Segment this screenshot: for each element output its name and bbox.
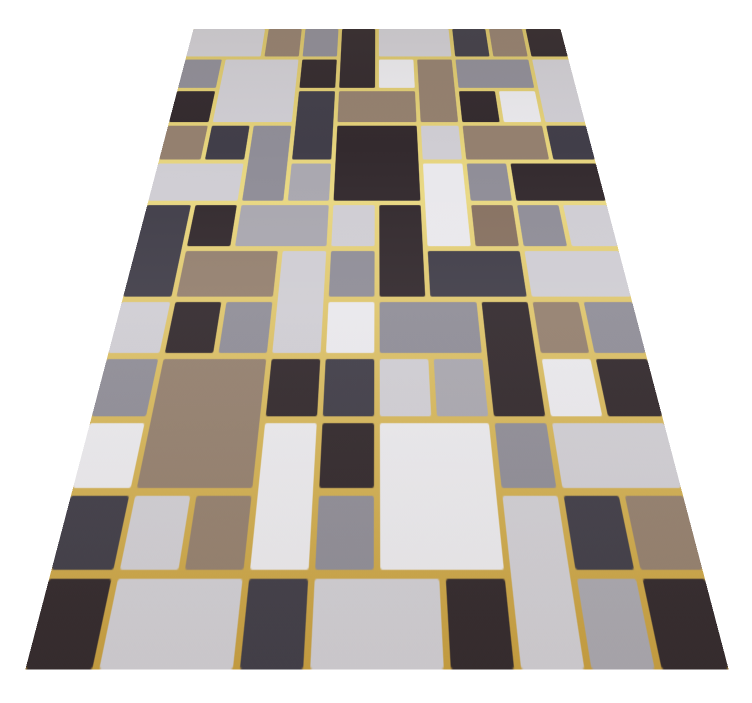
rug-tile bbox=[240, 579, 308, 669]
rug-tile bbox=[552, 423, 681, 488]
rug-plane bbox=[25, 29, 728, 669]
rug-tile bbox=[643, 579, 729, 669]
rug-tile bbox=[499, 91, 541, 122]
rug-tile bbox=[533, 302, 589, 353]
rug-tile bbox=[446, 579, 514, 669]
rug-tile bbox=[625, 496, 703, 570]
rug-tile bbox=[186, 29, 265, 56]
rug-tile bbox=[524, 251, 630, 297]
rug-tile bbox=[463, 126, 549, 160]
rug-tile bbox=[380, 359, 431, 416]
rug-tile bbox=[235, 205, 329, 246]
rug-tile bbox=[242, 126, 291, 201]
rug-tile bbox=[288, 164, 331, 201]
rug-tile bbox=[25, 579, 111, 669]
rug-tile bbox=[331, 205, 374, 246]
rug-tile bbox=[563, 205, 617, 246]
rug-tile bbox=[266, 359, 320, 416]
rug-tile bbox=[299, 60, 336, 88]
rug-tile bbox=[73, 423, 145, 488]
rug-tile bbox=[546, 126, 595, 160]
rug-tile bbox=[137, 359, 266, 488]
rug-tile bbox=[92, 359, 158, 416]
rug-tile bbox=[219, 302, 273, 353]
rug-tile bbox=[185, 496, 252, 570]
rug-tile bbox=[434, 359, 488, 416]
rug-tile bbox=[264, 29, 301, 56]
rug-tile bbox=[489, 29, 528, 56]
rug-tile bbox=[310, 579, 444, 669]
rug-tile bbox=[564, 496, 634, 570]
rug-tile bbox=[326, 302, 374, 353]
rug-tile bbox=[471, 205, 519, 246]
rug-tile bbox=[213, 60, 299, 123]
rug-tile bbox=[379, 29, 452, 56]
rug-tile bbox=[379, 60, 415, 88]
rug-tile bbox=[315, 496, 374, 570]
rug-tile bbox=[380, 302, 482, 353]
rug-tile bbox=[187, 205, 237, 246]
rug-tile bbox=[272, 251, 326, 353]
rug-tile bbox=[148, 164, 243, 201]
rug-tile bbox=[584, 302, 646, 353]
rug-tile bbox=[495, 423, 557, 488]
rug-tile bbox=[380, 423, 504, 570]
rug-tile bbox=[292, 91, 335, 159]
rug-tile bbox=[577, 579, 655, 669]
rug-tile bbox=[99, 579, 242, 669]
rug-tile bbox=[52, 496, 130, 570]
rug-tile bbox=[329, 251, 375, 297]
rug-tile bbox=[467, 164, 512, 201]
rug-tile bbox=[334, 126, 421, 201]
rug-tile bbox=[532, 60, 585, 123]
rug-tile bbox=[417, 60, 458, 123]
rug-tile bbox=[510, 164, 605, 201]
rug-tile bbox=[205, 126, 250, 160]
rug-tile bbox=[319, 423, 374, 488]
rug-tile bbox=[423, 164, 471, 247]
rug-tile bbox=[452, 29, 489, 56]
rug-tile bbox=[165, 302, 221, 353]
rug-tile bbox=[542, 359, 602, 416]
rug-tile bbox=[337, 91, 416, 122]
product-photo bbox=[0, 0, 752, 703]
rug-tile bbox=[250, 423, 317, 570]
rug-tile bbox=[526, 29, 568, 56]
rug-tile bbox=[459, 91, 500, 122]
rug-tile bbox=[517, 205, 567, 246]
rug-tile bbox=[303, 29, 339, 56]
rug-tile bbox=[120, 496, 190, 570]
rug-tile bbox=[323, 359, 374, 416]
rug-tile bbox=[169, 91, 215, 122]
rug-tile bbox=[379, 205, 425, 297]
rug-tile bbox=[108, 302, 170, 353]
rug-tile bbox=[596, 359, 662, 416]
rug-tile bbox=[421, 126, 462, 160]
rug-tile bbox=[428, 251, 527, 297]
rug-tile bbox=[456, 60, 535, 88]
rug-tile bbox=[177, 251, 278, 297]
rug-tile bbox=[339, 29, 375, 88]
rug-tile bbox=[159, 126, 208, 160]
rug-tile bbox=[178, 60, 222, 88]
